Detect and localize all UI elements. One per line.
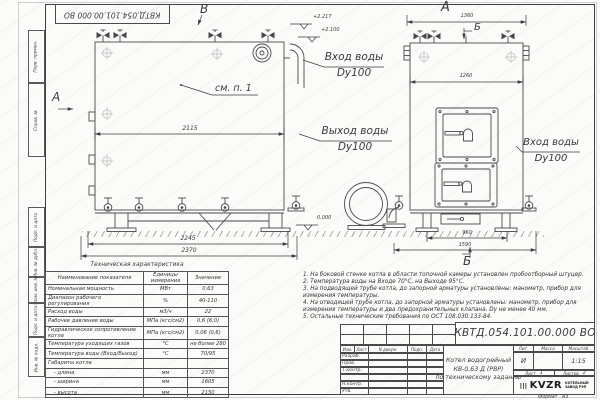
sheet-cell: Лист1 — [514, 371, 555, 375]
title-block-org-cell: ☰ KVZR КОТЕЛЬНЫЙ ЗАВОД РЭП — [513, 376, 595, 395]
dim-front-legs: 960 — [437, 231, 497, 237]
view-marker-b: В — [200, 3, 208, 16]
dim-side-base: 2245 — [158, 236, 218, 243]
scale-value: 1:15 — [563, 353, 594, 369]
spec-row: - ширинамм1605 — [46, 378, 228, 388]
spec-table-header: Наименование показателя Единицы измерени… — [46, 272, 228, 285]
title-block-sig-header: Изм. Лист N докум. Подп. Дата — [340, 345, 444, 353]
dim-front-top: 1360 — [437, 14, 497, 20]
spec-table-title: Техническая характеристика — [45, 262, 229, 269]
note-3: 3. На подводящей трубе котла, до запорно… — [303, 286, 594, 299]
spec-table: Наименование показателя Единицы измерени… — [45, 271, 229, 398]
pipe-label-inlet-right-line2: Dy100 — [520, 153, 582, 164]
note-2: 2. Температура воды на Входе 70°С, на Вы… — [303, 279, 594, 286]
spec-header-name: Наименование показателя — [46, 272, 144, 284]
dim-side-overall: 2370 — [159, 248, 219, 255]
spec-row: - длинамм2370 — [46, 369, 228, 379]
note-5: 5. Остальные технические требования по О… — [303, 314, 594, 321]
kvzr-logo-text: KVZR — [530, 380, 562, 391]
spec-header-units: Единицы измерения — [144, 272, 188, 284]
format-note: Формат А3 — [538, 395, 568, 400]
sig-row-tkontr: Т.контр. — [340, 367, 444, 374]
sig-row-utv: Утв. — [340, 388, 444, 395]
elevation-zero: 0.000 — [317, 216, 331, 222]
elevation-2217: +2.217 — [313, 15, 332, 21]
section-marker-b-top: Б — [474, 22, 481, 33]
dim-front-width: 1260 — [436, 74, 496, 80]
sheets-cell: Листов2 — [555, 371, 594, 375]
dim-front-overall: 1590 — [435, 243, 495, 249]
pipe-label-inlet-mid-line2: Dy100 — [322, 68, 386, 80]
note-4: 4. На отводящей трубе котла, до запорной… — [303, 300, 594, 313]
note-1: 1. На боковой стенке котла в области топ… — [303, 272, 594, 279]
elevation-2100: +2.100 — [321, 28, 340, 34]
col-podp: Подп. — [408, 346, 427, 352]
spec-row: Температура уходящих газов°Сне более 280 — [46, 340, 228, 350]
col-data: Дата — [427, 346, 443, 352]
title-block-doc-number-cell: КВТД.054.101.00.000 ВО — [455, 322, 595, 345]
spec-row: Габариты котла — [46, 359, 228, 369]
title-block-lmm-header: Лит. Масса Масштаб — [513, 345, 595, 352]
spec-row: Рабочее давление водыМПа (кгс/см2)0,6 (6… — [46, 317, 228, 327]
position-marks-side — [101, 47, 223, 167]
product-line-2: КВ-0,63 Д (РВР) — [454, 367, 504, 374]
lit-label: Лит. — [514, 346, 534, 351]
spec-row: Номинальная мощностьМВт0,63 — [46, 285, 228, 295]
mass-label: Масса — [534, 346, 563, 351]
sig-row-nkontr: Н.контр. — [340, 381, 444, 388]
sig-row-blank — [340, 374, 444, 381]
title-block-doc-number: КВТД.054.101.00.000 ВО — [454, 328, 596, 340]
pipe-label-outlet-line2: Dy100 — [316, 142, 394, 154]
spec-header-value: Значение — [188, 272, 228, 284]
lit-value: И — [514, 353, 534, 369]
position-marks-front — [418, 51, 517, 63]
spec-row: Расход водым3/ч22 — [46, 308, 228, 318]
view-marker-a-side: А — [52, 91, 60, 104]
spec-row: Температура воды (Вход/Выход)°С70/95 — [46, 349, 228, 359]
col-docnum: N докум. — [369, 346, 408, 352]
spec-row: - высотамм2150 — [46, 388, 228, 398]
product-line-3: по техническому заданию — [435, 375, 521, 382]
sig-row-prov: Пров. — [340, 360, 444, 367]
dim-side-width: 2115 — [160, 126, 220, 133]
sig-row-razrab: Разраб. — [340, 353, 444, 360]
section-marker-b-bottom: Б — [463, 255, 471, 268]
spec-row: Диапазон рабочего регулирования%40-110 — [46, 295, 228, 308]
pipe-label-inlet-right-line1: Вход воды — [520, 137, 582, 148]
spec-row: Гидравлическое сопротивление котлаМПа (к… — [46, 327, 228, 340]
title-block-product-cell: Котел водогрейный КВ-0,63 Д (РВР) по тех… — [443, 345, 514, 395]
scale-label: Масштаб — [563, 346, 594, 351]
kvzr-logo-bars-icon: ☰ — [519, 382, 527, 389]
title-block-lmm-values: И 1:15 — [513, 352, 595, 370]
pipe-label-outlet-line1: Выход воды — [316, 126, 394, 138]
front-view — [383, 31, 536, 232]
flue-fan — [345, 183, 397, 230]
pipe-label-inlet-mid-line1: Вход воды — [322, 52, 386, 64]
annotation-see-item: см. п. 1 — [215, 84, 252, 94]
col-list: Лист — [355, 346, 369, 352]
mass-value — [534, 353, 563, 369]
title-block-extra-grid — [340, 324, 456, 345]
product-line-1: Котел водогрейный — [446, 358, 511, 365]
drawing-sheet: Перв. примен. Справ. № Подп. и дата Инв.… — [0, 0, 600, 400]
org-name-line2: ЗАВОД РЭП — [565, 386, 588, 390]
col-izm: Изм. — [341, 346, 355, 352]
technical-notes: 1. На боковой стенке котла в области топ… — [303, 272, 594, 322]
